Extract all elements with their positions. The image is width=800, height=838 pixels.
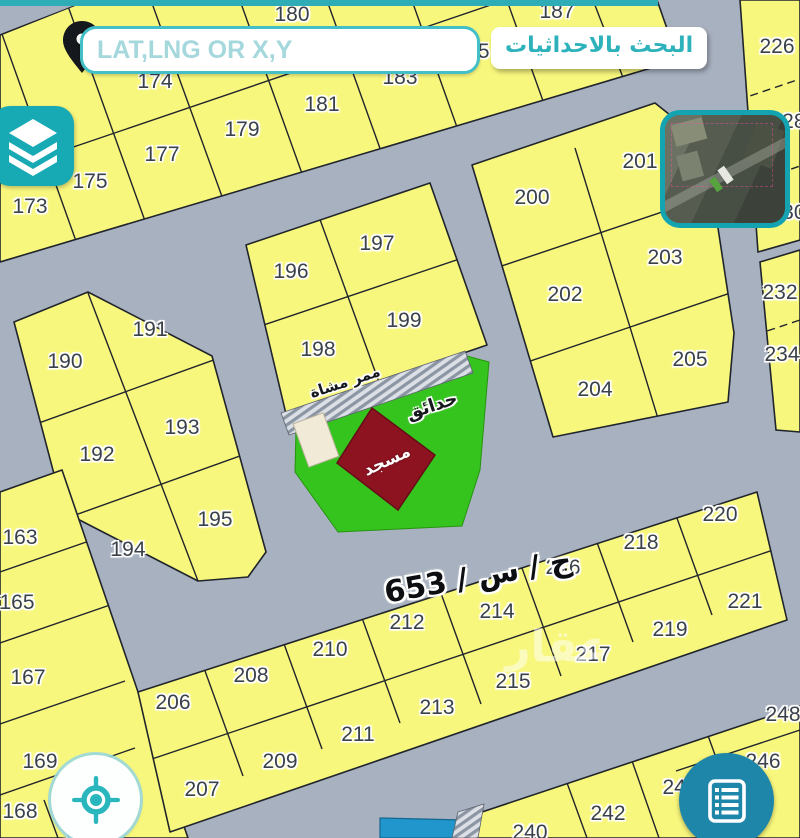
parcel-label-167[interactable]: 167 bbox=[10, 666, 45, 690]
parcel-label-210[interactable]: 210 bbox=[312, 638, 347, 662]
parcel-label-211[interactable]: 211 bbox=[341, 723, 374, 747]
parcel-label-195[interactable]: 195 bbox=[197, 508, 232, 532]
parcel-label-179[interactable]: 179 bbox=[224, 118, 259, 142]
parcel-label-190[interactable]: 190 bbox=[47, 350, 82, 374]
parcel-list-button[interactable] bbox=[679, 753, 774, 838]
parcel-label-165[interactable]: 165 bbox=[0, 591, 35, 615]
parcel-label-215[interactable]: 215 bbox=[495, 670, 530, 694]
parcel-label-209[interactable]: 209 bbox=[262, 750, 297, 774]
parcel-label-163[interactable]: 163 bbox=[2, 526, 37, 550]
map-edge-strip bbox=[0, 0, 658, 6]
parcel-label-213[interactable]: 213 bbox=[419, 696, 454, 720]
parcel-label-191[interactable]: 191 bbox=[132, 318, 167, 342]
parcel-label-206[interactable]: 206 bbox=[155, 691, 190, 715]
parcel-label-180[interactable]: 180 bbox=[274, 3, 309, 27]
basemap-satellite-thumbnail[interactable] bbox=[660, 110, 790, 228]
parcel-block-right-mid[interactable] bbox=[755, 250, 800, 432]
crosshair-icon bbox=[72, 776, 120, 824]
parcel-label-207[interactable]: 207 bbox=[184, 778, 219, 802]
layers-button[interactable] bbox=[0, 106, 74, 186]
locate-button[interactable] bbox=[51, 755, 140, 838]
parcel-label-220[interactable]: 220 bbox=[702, 503, 737, 527]
parcel-label-168[interactable]: 168 bbox=[2, 800, 37, 824]
parcel-label-177[interactable]: 177 bbox=[144, 143, 179, 167]
parcel-label-202[interactable]: 202 bbox=[547, 283, 582, 307]
hatch-wedge bbox=[452, 804, 484, 838]
parcel-label-232[interactable]: 232 bbox=[762, 281, 797, 305]
parcel-label-200[interactable]: 200 bbox=[514, 186, 549, 210]
parcel-label-199[interactable]: 199 bbox=[386, 309, 421, 333]
parcel-label-196[interactable]: 196 bbox=[273, 260, 308, 284]
parcel-label-173[interactable]: 173 bbox=[12, 195, 47, 219]
parcel-label-208[interactable]: 208 bbox=[233, 664, 268, 688]
parcel-label-212[interactable]: 212 bbox=[389, 611, 424, 635]
parcel-label-214[interactable]: 214 bbox=[479, 600, 514, 624]
satellite-image bbox=[665, 115, 785, 223]
watermark: عقار bbox=[505, 622, 609, 673]
list-icon bbox=[701, 775, 753, 827]
parcel-label-197[interactable]: 197 bbox=[359, 232, 394, 256]
parcel-label-219[interactable]: 219 bbox=[652, 618, 687, 642]
parcel-label-198[interactable]: 198 bbox=[300, 338, 335, 362]
parcel-label-175[interactable]: 175 bbox=[72, 170, 107, 194]
parcel-label-194[interactable]: 194 bbox=[110, 538, 145, 562]
blue-parcel[interactable] bbox=[380, 818, 462, 838]
parcel-label-203[interactable]: 203 bbox=[647, 246, 682, 270]
parcel-label-242[interactable]: 242 bbox=[590, 802, 625, 826]
parcel-label-218[interactable]: 218 bbox=[623, 531, 658, 555]
parcel-label-181[interactable]: 181 bbox=[304, 93, 339, 117]
layers-icon bbox=[4, 115, 62, 177]
parcel-label-192[interactable]: 192 bbox=[79, 443, 114, 467]
parcel-label-234[interactable]: 234 bbox=[764, 343, 799, 367]
parcel-label-226[interactable]: 226 bbox=[759, 35, 794, 59]
parcel-label-221[interactable]: 221 bbox=[727, 590, 762, 614]
search-input[interactable] bbox=[80, 26, 480, 74]
parcel-label-248[interactable]: 248 bbox=[765, 703, 800, 727]
parcel-label-193[interactable]: 193 bbox=[164, 416, 199, 440]
map-canvas[interactable]: 1801831851871741731751771791811901911921… bbox=[0, 0, 800, 838]
parcel-label-204[interactable]: 204 bbox=[577, 378, 612, 402]
parcel-label-205[interactable]: 205 bbox=[672, 348, 707, 372]
search-label: البحث بالاحداثيات bbox=[491, 27, 707, 69]
parcel-label-201[interactable]: 201 bbox=[622, 150, 657, 174]
parcel-label-240[interactable]: 240 bbox=[512, 821, 547, 838]
parcel-label-169[interactable]: 169 bbox=[22, 750, 57, 774]
